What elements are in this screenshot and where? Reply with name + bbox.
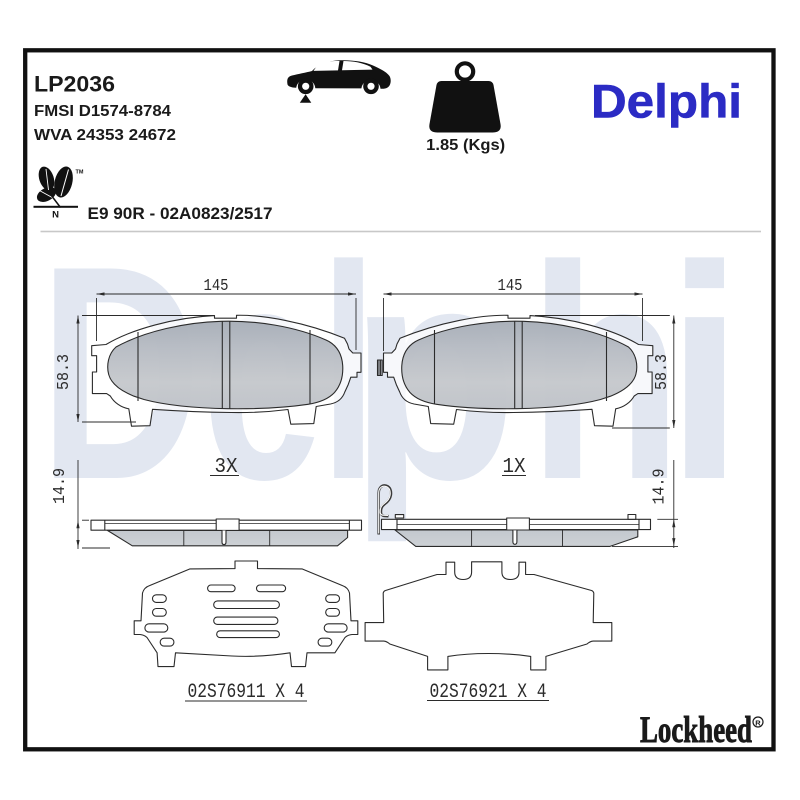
svg-text:N: N — [52, 210, 59, 221]
svg-text:58.3: 58.3 — [55, 354, 74, 390]
svg-text:TM: TM — [76, 170, 84, 176]
svg-text:LP2036: LP2036 — [34, 72, 115, 97]
svg-text:Delphi: Delphi — [591, 75, 742, 128]
svg-text:R: R — [755, 719, 761, 728]
svg-text:i: i — [666, 203, 744, 543]
svg-text:145: 145 — [498, 277, 523, 296]
svg-text:14.9: 14.9 — [651, 469, 670, 505]
svg-text:1.85 (Kgs): 1.85 (Kgs) — [426, 137, 505, 154]
svg-text:WVA 24353 24672: WVA 24353 24672 — [34, 127, 176, 144]
svg-text:14.9: 14.9 — [51, 468, 70, 504]
svg-text:E9 90R - 02A0823/2517: E9 90R - 02A0823/2517 — [88, 205, 273, 223]
svg-text:FMSI D1574-8784: FMSI D1574-8784 — [34, 103, 171, 120]
svg-text:Lockheed: Lockheed — [640, 710, 752, 751]
svg-text:58.3: 58.3 — [653, 354, 672, 390]
svg-text:145: 145 — [204, 277, 229, 296]
